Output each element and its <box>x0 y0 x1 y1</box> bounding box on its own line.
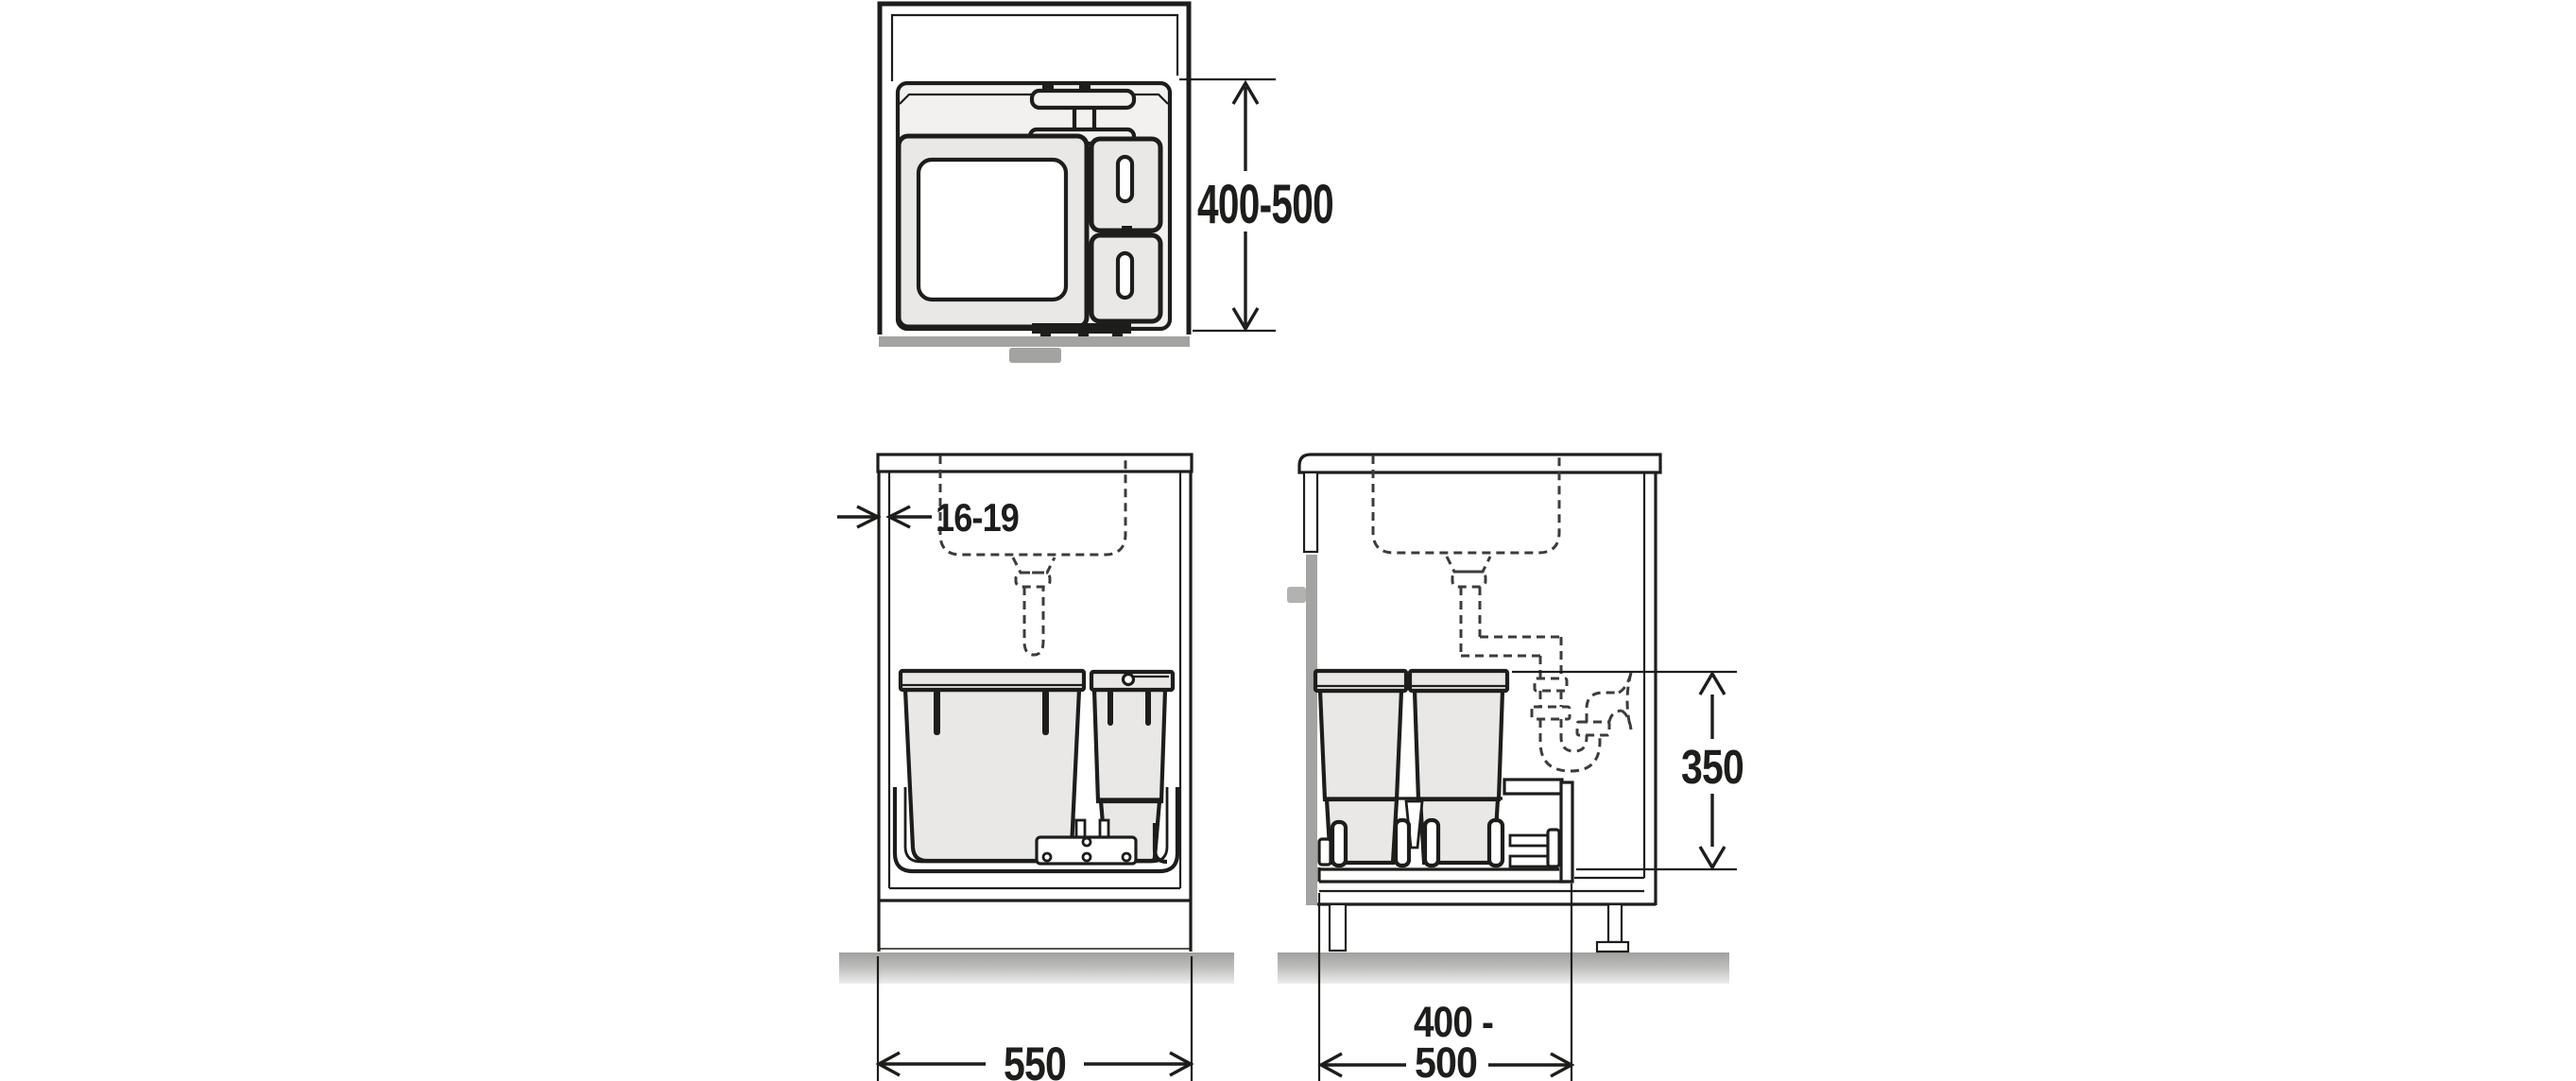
bins-side <box>1315 671 1507 866</box>
large-bin-front <box>901 671 1084 861</box>
plan-depth-label: 400-500 <box>1197 174 1333 235</box>
drain-pipe-front <box>1013 558 1055 655</box>
large-bin-top <box>899 136 1087 327</box>
countertop-side <box>1299 455 1660 472</box>
cabinet-legs-side <box>1330 904 1628 952</box>
bin-height-label: 350 <box>1681 740 1743 794</box>
door-panel-top <box>879 336 1190 363</box>
front-slide-bracket <box>1032 323 1131 338</box>
floor-side <box>1278 952 1729 984</box>
panel-thickness-label: 16-19 <box>936 495 1019 540</box>
front-view-diagram: 16-19 550 <box>837 455 1234 1081</box>
front-door-side <box>1287 472 1317 905</box>
small-bins-top <box>1091 139 1160 321</box>
dimension-panel-thickness: 16-19 <box>837 495 1019 540</box>
side-view-diagram: 350 400 - 500 <box>1278 455 1743 1081</box>
top-view-diagram: 400-500 <box>879 4 1333 363</box>
pullout-depth-label-line2: 500 <box>1415 1038 1477 1081</box>
dimension-plan-depth: 400-500 <box>1179 79 1333 331</box>
technical-drawing-page: 400-500 <box>0 0 2576 1081</box>
floor-front <box>839 952 1234 984</box>
cabinet-waste-bin-technical-drawing: 400-500 <box>0 0 2576 1081</box>
cabinet-width-label: 550 <box>1004 1038 1066 1081</box>
